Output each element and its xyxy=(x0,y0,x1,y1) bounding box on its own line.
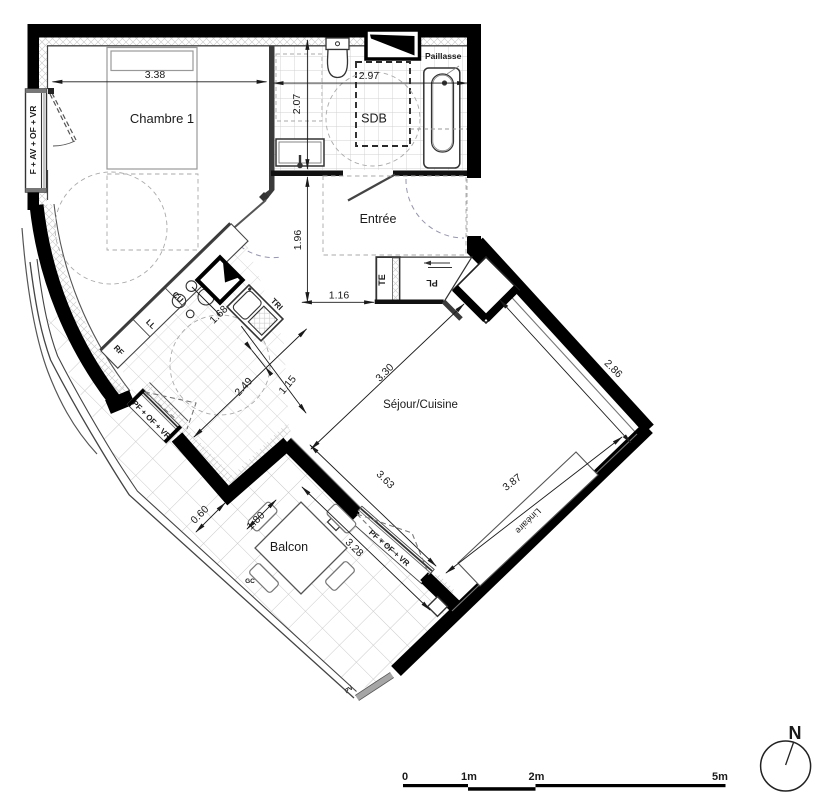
svg-text:1.96: 1.96 xyxy=(292,230,304,251)
svg-text:2.07: 2.07 xyxy=(291,94,303,115)
svg-text:Séjour/Cuisine: Séjour/Cuisine xyxy=(383,399,458,411)
svg-text:Balcon: Balcon xyxy=(270,540,308,554)
svg-text:PL: PL xyxy=(426,278,438,288)
svg-text:3.38: 3.38 xyxy=(145,69,166,81)
svg-text:2m: 2m xyxy=(529,771,545,783)
svg-text:Chambre 1: Chambre 1 xyxy=(130,111,194,126)
svg-text:2.97: 2.97 xyxy=(359,70,380,82)
svg-text:0: 0 xyxy=(402,771,408,783)
svg-text:SDB: SDB xyxy=(361,112,387,126)
svg-text:GC: GC xyxy=(245,578,255,585)
svg-text:Entrée: Entrée xyxy=(360,212,397,226)
svg-text:F + AV + OF + VR: F + AV + OF + VR xyxy=(28,106,38,175)
svg-text:Paillasse: Paillasse xyxy=(425,51,462,61)
svg-text:1m: 1m xyxy=(461,771,477,783)
svg-text:N: N xyxy=(789,723,802,743)
svg-text:TE: TE xyxy=(377,274,387,286)
svg-text:5m: 5m xyxy=(712,771,728,783)
svg-text:1.16: 1.16 xyxy=(329,290,350,302)
